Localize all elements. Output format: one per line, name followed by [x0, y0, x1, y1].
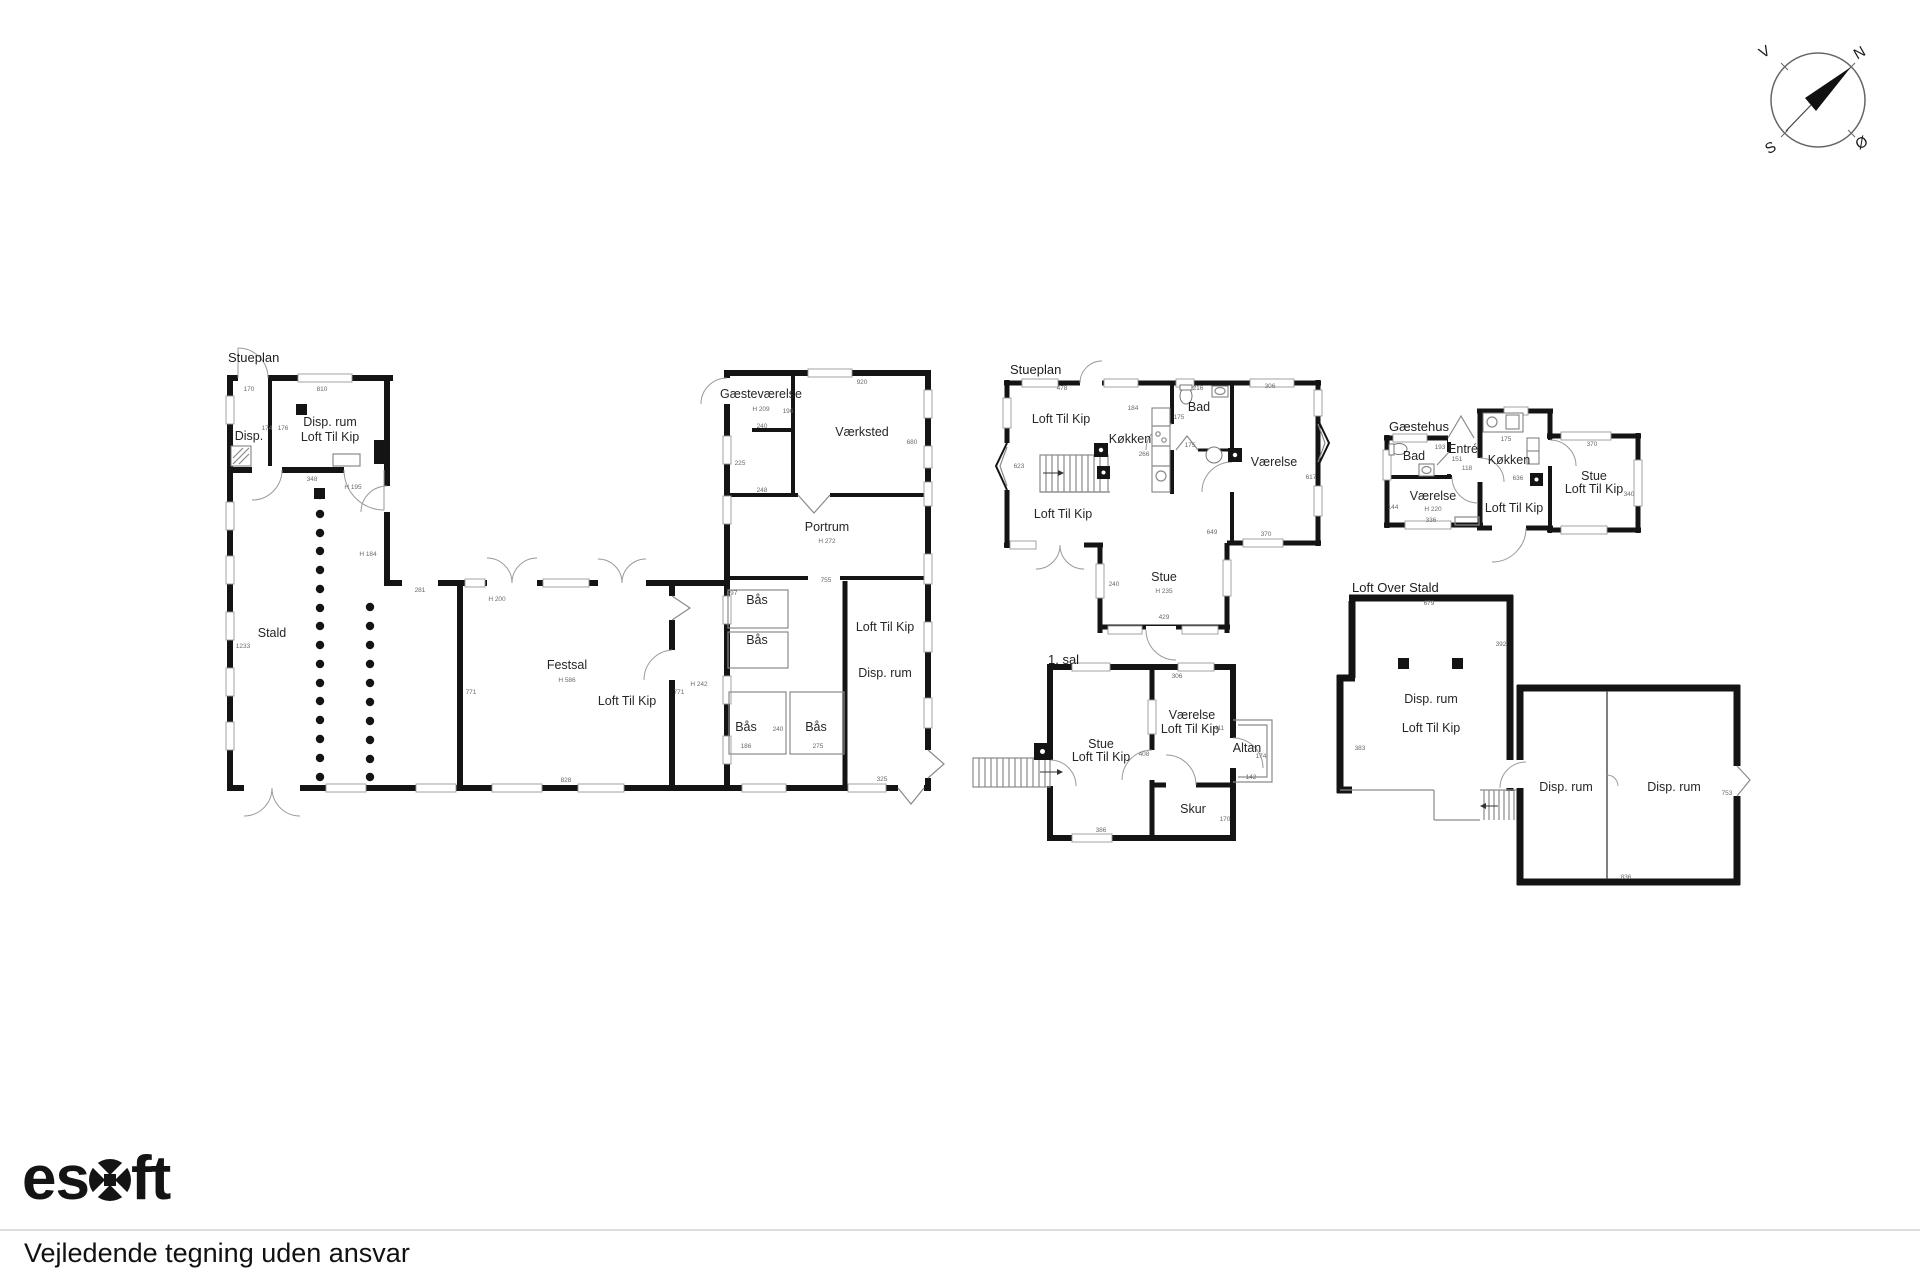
room-label: Disp. rum: [1647, 780, 1700, 794]
measurement: 175: [1501, 436, 1512, 443]
room-label: Loft Til Kip: [1485, 501, 1543, 515]
measurement: 370: [1261, 531, 1272, 538]
room-label: Værelse: [1169, 708, 1216, 722]
floor-plan-gaestehus: Gæstehus Bad Entré Køkken Værelse Loft T…: [1383, 407, 1642, 562]
fixtures: [1398, 658, 1514, 820]
measurement: 151: [1452, 456, 1463, 463]
measurement: 186: [741, 743, 752, 750]
measurement: 240: [773, 726, 784, 733]
measurement: 170: [1220, 816, 1231, 823]
measurement: 174: [1256, 753, 1267, 760]
measurement: 142: [1246, 774, 1257, 781]
room-label: Stue: [1151, 570, 1177, 584]
measurement: 240: [1109, 581, 1120, 588]
measurement: 336: [1426, 517, 1437, 524]
room-label: Bad: [1188, 400, 1210, 414]
measurement: 836: [1621, 874, 1632, 881]
measurement: 175: [1185, 442, 1196, 449]
measurement: 636: [1513, 475, 1524, 482]
room-label: Disp. rum: [303, 415, 356, 429]
plan-title: Loft Over Stald: [1352, 580, 1439, 595]
measurement: H 195: [344, 484, 362, 491]
measurement: 771: [466, 689, 477, 696]
esoft-wheel-icon: [88, 1158, 132, 1202]
room-label: Stue: [1581, 469, 1607, 483]
measurement: 383: [1355, 745, 1366, 752]
measurement: 411: [1214, 725, 1225, 732]
measurement: 828: [561, 777, 572, 784]
measurement: 174: [262, 425, 273, 432]
room-label: Værelse: [1410, 489, 1457, 503]
room-label: Stald: [258, 626, 287, 640]
measurement: 118: [1462, 465, 1473, 472]
room-label: Loft Til Kip: [1072, 750, 1130, 764]
measurement: 348: [307, 476, 318, 483]
measurement: 325: [877, 776, 888, 783]
room-label: Loft Til Kip: [1565, 482, 1623, 496]
measurement: 193: [1435, 444, 1446, 451]
room-label: Bås: [746, 633, 768, 647]
measurement: 679: [1424, 600, 1435, 607]
measurement: 753: [1722, 790, 1733, 797]
footer-divider: [0, 1229, 1920, 1231]
room-label: Værksted: [835, 425, 889, 439]
room-label: Entré: [1448, 442, 1478, 456]
floor-plan-house-stueplan: Stueplan Loft Til Kip Køkken Bad Værelse…: [996, 361, 1329, 660]
fixtures: [973, 743, 1063, 787]
measurement: 240: [757, 423, 768, 430]
measurement: H 272: [818, 538, 836, 545]
measurement: 175: [1174, 414, 1185, 421]
floor-plan-first-floor: 1. sal Stue Loft Til Kip Værelse Loft Ti…: [973, 652, 1272, 842]
measurement: 275: [813, 743, 824, 750]
measurement: 170: [244, 386, 255, 393]
floor-plan-farm-stueplan: Stueplan Disp. Disp. rum Loft Til Kip St…: [226, 348, 944, 816]
room-label: Stue: [1088, 737, 1114, 751]
room-label: Køkken: [1488, 453, 1530, 467]
room-label: Loft Til Kip: [598, 694, 656, 708]
floor-plan-loft-over-stald: Loft Over Stald Disp. rum Loft Til Kip D…: [1337, 580, 1750, 885]
room-label: Loft Til Kip: [1034, 507, 1092, 521]
walls: [1337, 595, 1740, 885]
measurements: 679 392 383 836 753: [1355, 600, 1733, 881]
measurement: H 220: [1424, 506, 1442, 513]
compass-north-label: N: [1851, 43, 1869, 63]
measurement: 392: [1496, 641, 1507, 648]
logo-text-es: es: [22, 1144, 89, 1213]
room-label: Skur: [1180, 802, 1206, 816]
compass-rose-icon: V N S Ø: [1756, 42, 1871, 158]
measurement: 340: [1624, 491, 1635, 498]
measurement: 216: [1193, 385, 1204, 392]
logo-text-ft: ft: [131, 1144, 170, 1213]
measurement: 649: [1207, 529, 1218, 536]
room-label: Bås: [735, 720, 757, 734]
compass-south-label: S: [1762, 138, 1779, 158]
door-arcs: [1500, 762, 1750, 796]
plan-title: 1. sal: [1048, 652, 1079, 667]
floorplan-sheet: Stueplan Disp. Disp. rum Loft Til Kip St…: [0, 0, 1920, 1280]
measurement: 306: [1172, 673, 1183, 680]
measurement: 810: [317, 386, 328, 393]
esoft-logo: esft: [22, 1148, 170, 1210]
room-label: Bås: [746, 593, 768, 607]
measurement: 184: [1128, 405, 1139, 412]
measurement: H 209: [752, 406, 770, 413]
measurement: 370: [1587, 441, 1598, 448]
measurement: 920: [857, 379, 868, 386]
room-label: Festsal: [547, 658, 587, 672]
floorplan-canvas: Stueplan Disp. Disp. rum Loft Til Kip St…: [0, 0, 1920, 1280]
compass-needle: [1805, 67, 1851, 111]
room-label: Disp.: [235, 429, 263, 443]
room-label: Køkken: [1109, 432, 1151, 446]
room-label: Gæsteværelse: [720, 387, 802, 401]
measurement: H 242: [690, 681, 708, 688]
room-label: Loft Til Kip: [1161, 722, 1219, 736]
plan-title: Stueplan: [1010, 362, 1061, 377]
measurement: 176: [278, 425, 289, 432]
measurement: 408: [1139, 751, 1150, 758]
room-label: Værelse: [1251, 455, 1298, 469]
measurement: 281: [415, 587, 426, 594]
measurement: 697: [727, 590, 738, 597]
stable-posts: [316, 491, 374, 781]
measurement: H 235: [1155, 588, 1173, 595]
measurement: 1233: [236, 643, 251, 650]
compass-west-label: V: [1756, 42, 1773, 62]
room-label: Bad: [1403, 449, 1425, 463]
room-label: Loft Til Kip: [856, 620, 914, 634]
measurement: H 184: [359, 551, 377, 558]
room-label: Portrum: [805, 520, 849, 534]
measurement: 196: [783, 408, 794, 415]
measurement: 306: [1265, 383, 1276, 390]
disclaimer-text: Vejledende tegning uden ansvar: [24, 1238, 410, 1269]
room-label: Loft Til Kip: [1032, 412, 1090, 426]
measurement: 144: [1388, 504, 1399, 511]
measurement: 623: [1014, 463, 1025, 470]
compass-east-label: Ø: [1852, 133, 1871, 154]
measurement: 386: [1096, 827, 1107, 834]
room-label: Disp. rum: [1404, 692, 1457, 706]
measurement: 771: [674, 689, 685, 696]
plan-title: Stueplan: [228, 350, 279, 365]
measurement: 478: [1057, 385, 1068, 392]
room-label: Loft Til Kip: [1402, 721, 1460, 735]
measurement: 225: [735, 460, 746, 467]
plan-title: Gæstehus: [1389, 419, 1449, 434]
measurement: 755: [821, 577, 832, 584]
measurement: 680: [907, 439, 918, 446]
measurement: 266: [1139, 451, 1150, 458]
room-labels: Disp. rum Loft Til Kip Disp. rum Disp. r…: [1402, 692, 1701, 794]
measurement: H 586: [558, 677, 576, 684]
room-label: Bås: [805, 720, 827, 734]
measurement: 617: [1306, 474, 1317, 481]
measurement: 429: [1159, 614, 1170, 621]
measurement: 248: [757, 487, 768, 494]
room-label: Disp. rum: [1539, 780, 1592, 794]
measurement: H 200: [488, 596, 506, 603]
room-label: Disp. rum: [858, 666, 911, 680]
room-label: Loft Til Kip: [301, 430, 359, 444]
